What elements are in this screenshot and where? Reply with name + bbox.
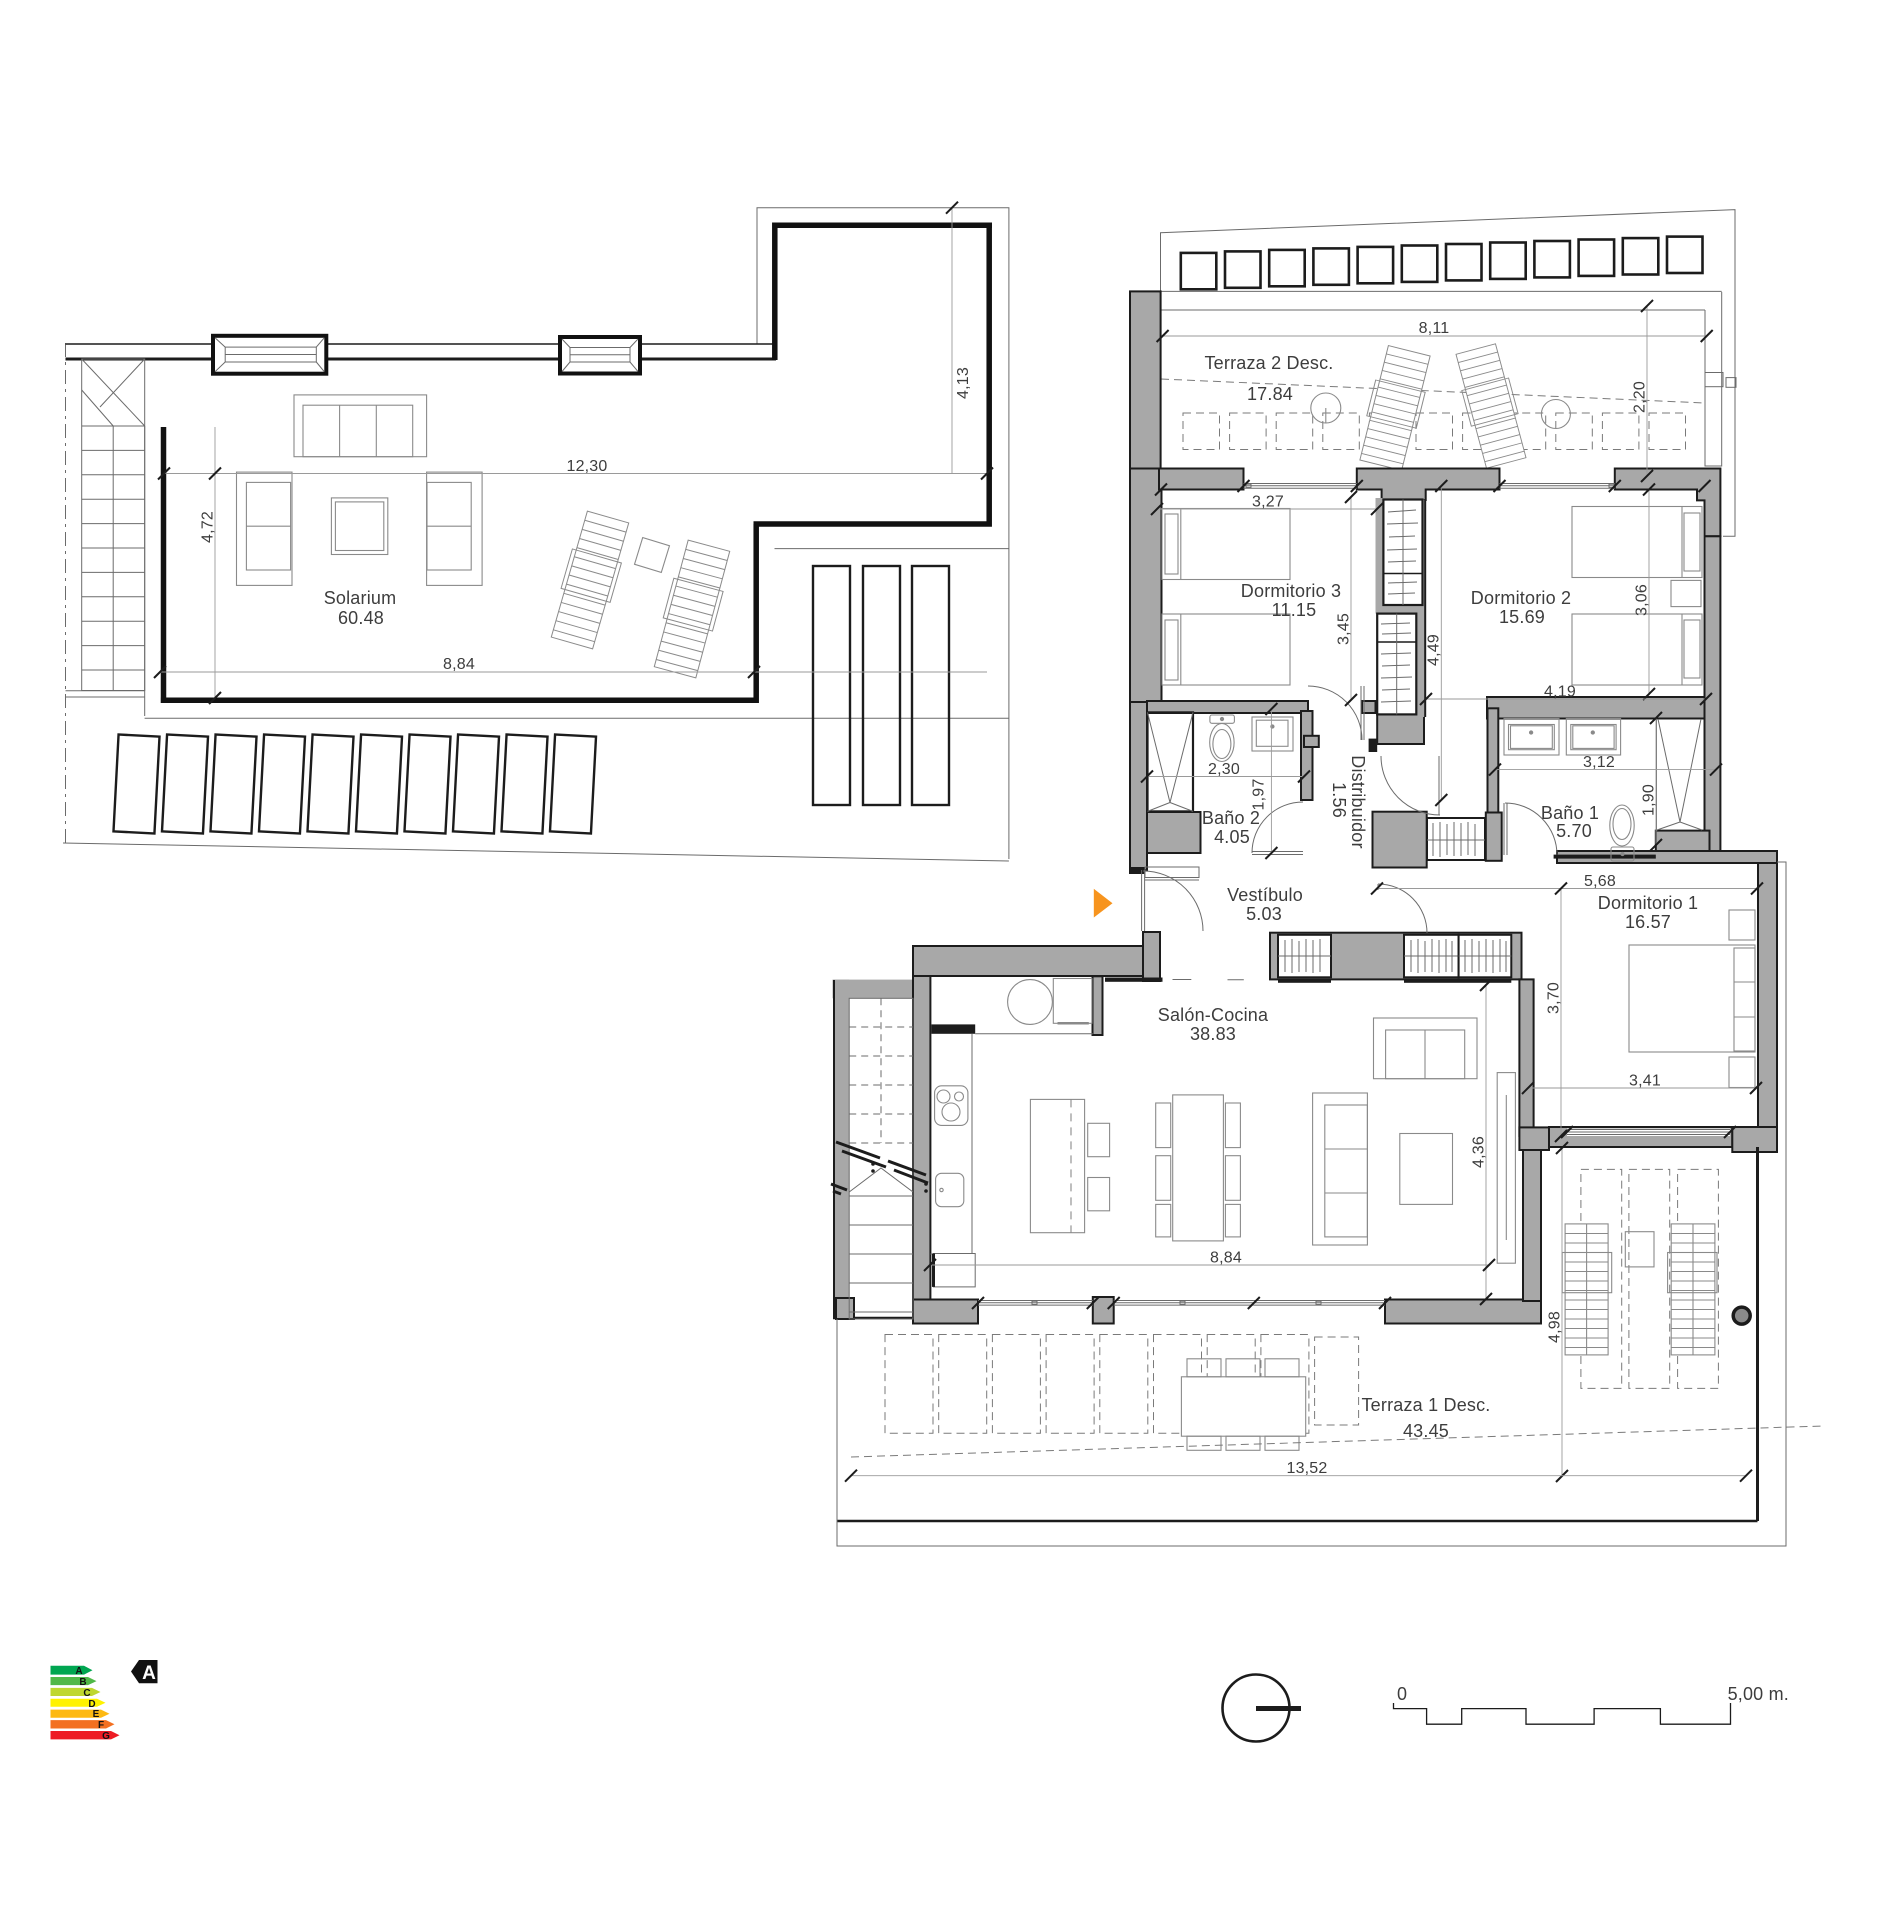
svg-text:3,70: 3,70 (1546, 982, 1563, 1014)
svg-text:Baño 2: Baño 2 (1202, 808, 1260, 828)
svg-text:Salón-Cocina: Salón-Cocina (1158, 1005, 1269, 1025)
svg-text:3,06: 3,06 (1634, 584, 1651, 616)
svg-text:38.83: 38.83 (1190, 1024, 1236, 1044)
svg-text:3,45: 3,45 (1336, 613, 1353, 645)
svg-text:1.56: 1.56 (1329, 782, 1349, 818)
svg-text:8,84: 8,84 (1210, 1250, 1242, 1267)
svg-text:2,20: 2,20 (1632, 381, 1649, 413)
svg-text:Dormitorio 2: Dormitorio 2 (1471, 588, 1571, 608)
svg-text:Solarium: Solarium (324, 588, 397, 608)
svg-text:60.48: 60.48 (338, 608, 384, 628)
svg-text:Vestíbulo: Vestíbulo (1227, 885, 1303, 905)
svg-text:B: B (79, 1677, 86, 1688)
svg-text:3,12: 3,12 (1583, 754, 1615, 771)
svg-text:12,30: 12,30 (566, 458, 607, 475)
svg-text:4.05: 4.05 (1214, 827, 1250, 847)
svg-text:Distribuidor: Distribuidor (1348, 755, 1368, 848)
svg-text:8,84: 8,84 (443, 656, 475, 673)
svg-text:4,13: 4,13 (955, 367, 972, 399)
svg-text:E: E (93, 1709, 100, 1720)
svg-text:Terraza 1 Desc.: Terraza 1 Desc. (1361, 1395, 1490, 1415)
svg-text:13,52: 13,52 (1286, 1460, 1327, 1477)
svg-text:F: F (98, 1720, 104, 1731)
svg-text:15.69: 15.69 (1499, 607, 1545, 627)
svg-text:8,11: 8,11 (1419, 320, 1450, 337)
svg-text:0: 0 (1397, 1684, 1407, 1704)
svg-text:5,00 m.: 5,00 m. (1728, 1684, 1789, 1704)
svg-text:Baño 1: Baño 1 (1541, 803, 1599, 823)
svg-text:4,49: 4,49 (1426, 634, 1443, 666)
svg-text:43.45: 43.45 (1403, 1421, 1449, 1441)
svg-text:5.03: 5.03 (1246, 904, 1282, 924)
svg-text:3,27: 3,27 (1252, 494, 1284, 511)
svg-text:A: A (142, 1663, 156, 1684)
svg-text:11.15: 11.15 (1272, 600, 1317, 620)
svg-text:Terraza 2 Desc.: Terraza 2 Desc. (1204, 353, 1333, 373)
svg-text:4,98: 4,98 (1547, 1311, 1564, 1343)
svg-text:3,41: 3,41 (1629, 1073, 1661, 1090)
svg-text:2,30: 2,30 (1208, 761, 1240, 778)
svg-text:17.84: 17.84 (1247, 384, 1293, 404)
svg-text:G: G (102, 1731, 110, 1742)
svg-text:C: C (83, 1688, 90, 1699)
svg-text:5.70: 5.70 (1556, 821, 1592, 841)
svg-text:5,68: 5,68 (1584, 873, 1616, 890)
svg-text:A: A (75, 1666, 82, 1677)
svg-text:1,90: 1,90 (1641, 784, 1658, 816)
svg-text:Dormitorio 1: Dormitorio 1 (1598, 893, 1698, 913)
svg-text:4,72: 4,72 (200, 511, 217, 543)
svg-text:16.57: 16.57 (1625, 912, 1671, 932)
svg-text:1,97: 1,97 (1251, 779, 1268, 811)
svg-text:Dormitorio 3: Dormitorio 3 (1241, 581, 1341, 601)
svg-text:4,36: 4,36 (1471, 1136, 1488, 1168)
svg-text:4,19: 4,19 (1544, 684, 1576, 701)
